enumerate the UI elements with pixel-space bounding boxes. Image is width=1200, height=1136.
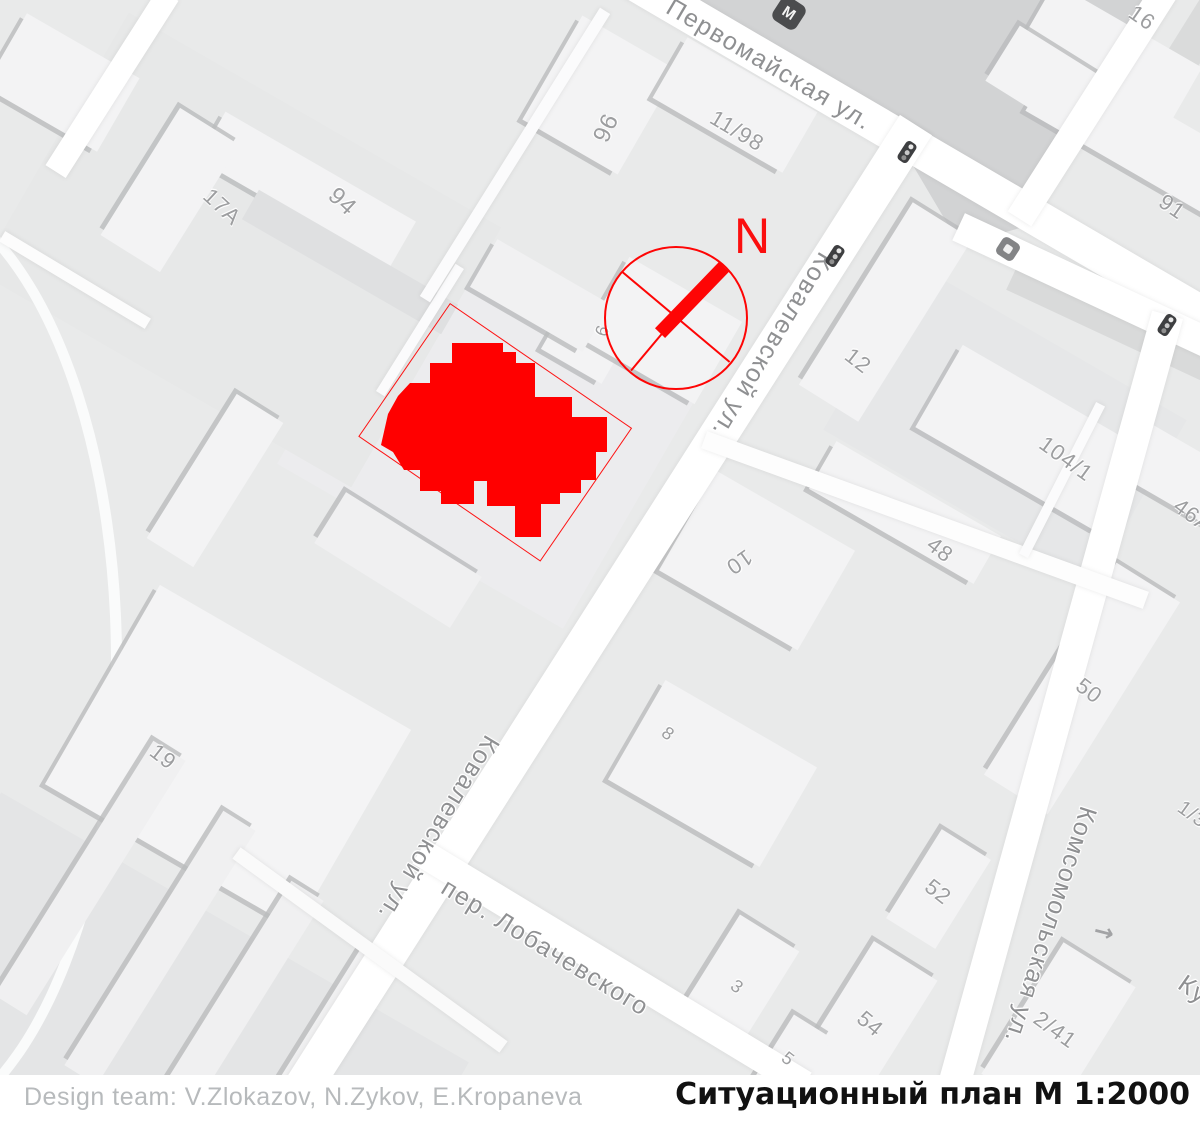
map-area: N Первомайская ул.Ковалевской ул.Ковалев… <box>0 0 1200 1075</box>
traffic-light-lamp <box>1167 316 1174 323</box>
building-number-label: 1/3 <box>1173 797 1200 834</box>
traffic-light-lamp <box>907 143 914 150</box>
north-label: N <box>734 207 770 265</box>
bus-stop-dot <box>1002 243 1013 254</box>
street-name-label: Ку <box>1172 969 1200 1010</box>
compass-north-indicator <box>604 246 748 390</box>
traffic-light-lamp <box>904 149 911 156</box>
one-way-arrow-icon: → <box>1091 916 1117 948</box>
building-block <box>147 393 284 566</box>
traffic-light-lamp <box>835 247 842 254</box>
plan-title: Ситуационный план М 1:2000 <box>675 1077 1190 1112</box>
street-name-label: пер. Лобачевского <box>436 873 654 1022</box>
traffic-light-lamp <box>832 253 839 260</box>
footer: Design team: V.Zlokazov, N.Zykov, E.Krop… <box>0 1075 1200 1136</box>
traffic-light-lamp <box>1164 322 1171 329</box>
traffic-light-lamp <box>828 258 835 265</box>
traffic-light-lamp <box>900 154 907 161</box>
traffic-light-lamp <box>1160 327 1167 334</box>
situational-plan: N Первомайская ул.Ковалевской ул.Ковалев… <box>0 0 1200 1136</box>
building-block <box>607 679 816 866</box>
design-team-credit: Design team: V.Zlokazov, N.Zykov, E.Krop… <box>24 1083 582 1112</box>
